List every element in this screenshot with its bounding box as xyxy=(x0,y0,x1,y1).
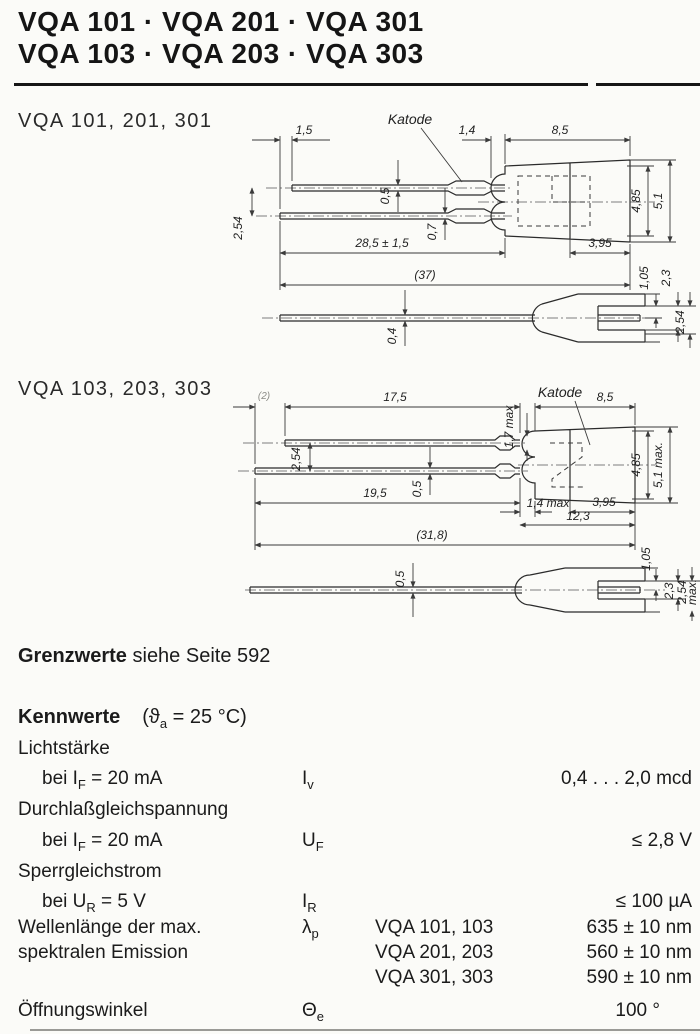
dim-max-suffix: max. xyxy=(685,579,699,605)
page-title: VQA 101 · VQA 201 · VQA 301 VQA 103 · VQ… xyxy=(18,6,424,70)
row-durchlass-group: Durchlaßgleichspannung xyxy=(18,799,694,825)
variant-type: VQA 301, 303 xyxy=(375,967,493,989)
dim-2-54: 2,54 xyxy=(231,216,245,241)
dim-1-4-max: 1,4 max xyxy=(527,496,571,510)
sym-sub: R xyxy=(307,900,316,915)
dim-1-05: 1,05 xyxy=(637,266,651,290)
dim-2: (2) xyxy=(258,391,270,402)
variant-value: 590 ± 10 nm xyxy=(587,967,693,989)
value-lichtstaerke: 0,4 . . . 2,0 mcd xyxy=(561,768,692,790)
dim-8-5: 8,5 xyxy=(552,123,569,137)
dim-8-5: 8,5 xyxy=(597,390,614,404)
condition-pre: (ϑ xyxy=(142,706,160,728)
value-sperr: ≤ 100 µA xyxy=(616,891,692,913)
dim-19-5: 19,5 xyxy=(363,486,387,500)
condition-label: bei UR = 5 V xyxy=(42,891,146,913)
dim-4-85: 4,85 xyxy=(629,453,643,477)
group-label: Lichtstärke xyxy=(18,738,110,759)
row-sperr-value: bei UR = 5 V IR ≤ 100 µA xyxy=(18,891,694,917)
dim-12-3: 12,3 xyxy=(566,509,590,523)
value-durchlass: ≤ 2,8 V xyxy=(632,830,692,852)
dim-2-3: 2,3 xyxy=(662,582,676,600)
figure1-technical-drawing: Katode 1,5 1,4 8,5 0,5 0,7 2,54 28,5 ± 1… xyxy=(0,108,700,370)
row-lichtstaerke-group: Lichtstärke xyxy=(18,738,694,764)
cond-sub: F xyxy=(78,777,86,792)
title-rule-right xyxy=(596,83,700,86)
dim-0-7: 0,7 xyxy=(425,222,439,240)
figure2-technical-drawing: (2) 17,5 1,7 max Katode 8,5 2,54 0,5 19,… xyxy=(0,385,700,640)
cond-post: = 5 V xyxy=(96,891,146,912)
dim-2-54: 2,54 xyxy=(289,447,303,472)
row-durchlass-value: bei IF = 20 mA UF ≤ 2,8 V xyxy=(18,830,694,856)
value-oeffnungswinkel: 100 ° xyxy=(615,1000,660,1022)
dim-1-5: 1,5 xyxy=(296,123,313,137)
fig2-dimension-labels: (2) 17,5 1,7 max Katode 8,5 2,54 0,5 19,… xyxy=(258,384,699,605)
dim-3-95: 3,95 xyxy=(588,236,612,250)
dim-0-4: 0,4 xyxy=(385,327,399,344)
cond-sub: F xyxy=(78,839,86,854)
dim-5-1: 5,1 xyxy=(651,193,665,210)
datasheet-page: VQA 101 · VQA 201 · VQA 301 VQA 103 · VQ… xyxy=(0,0,700,1034)
variant-value: 635 ± 10 nm xyxy=(587,917,693,939)
wellenlaenge-name-2: spektralen Emission xyxy=(18,942,188,963)
dim-37: (37) xyxy=(414,268,435,282)
dim-3-95: 3,95 xyxy=(592,495,616,509)
dim-1-4: 1,4 xyxy=(459,123,476,137)
dim-1-7-max: 1,7 max xyxy=(502,405,516,449)
symbol-lambda-p: λp xyxy=(302,917,319,939)
fig2-dimension-lines xyxy=(233,401,700,621)
condition-sub: a xyxy=(160,716,167,731)
cond-sub: R xyxy=(86,900,95,915)
cond-post: = 20 mA xyxy=(86,830,163,851)
row-lichtstaerke-value: bei IF = 20 mA Iv 0,4 . . . 2,0 mcd xyxy=(18,768,694,794)
grenzwerte-text: siehe Seite 592 xyxy=(127,645,270,667)
cond-pre: bei I xyxy=(42,768,78,789)
row-wellenlaenge-2: spektralen Emission VQA 201, 203 560 ± 1… xyxy=(18,942,694,968)
variant-value: 560 ± 10 nm xyxy=(587,942,693,964)
symbol-iv: Iv xyxy=(302,768,314,790)
sym: λ xyxy=(302,917,312,938)
condition-label: bei IF = 20 mA xyxy=(42,768,162,790)
condition-label: bei IF = 20 mA xyxy=(42,830,162,852)
cond-pre: bei I xyxy=(42,830,78,851)
fig1-katode-label: Katode xyxy=(388,111,433,127)
wellenlaenge-name-1: Wellenlänge der max. xyxy=(18,917,201,938)
variant-type: VQA 201, 203 xyxy=(375,942,493,964)
sym-sub: v xyxy=(307,777,314,792)
title-line-2: VQA 103 · VQA 203 · VQA 303 xyxy=(18,38,424,70)
dim-17-5: 17,5 xyxy=(383,390,407,404)
symbol-uf: UF xyxy=(302,830,324,852)
dim-4-85: 4,85 xyxy=(629,189,643,213)
row-wellenlaenge-1: Wellenlänge der max. λp VQA 101, 103 635… xyxy=(18,917,694,943)
sym-sub: F xyxy=(316,839,324,854)
sym-sub: e xyxy=(317,1009,324,1024)
dim-0-5: 0,5 xyxy=(378,187,392,204)
dim-2-54b: 2,54 xyxy=(673,310,687,335)
kennwerte-condition: (ϑa = 25 °C) xyxy=(142,706,247,728)
row-wellenlaenge-3: VQA 301, 303 590 ± 10 nm xyxy=(18,967,694,993)
dim-31-8: (31,8) xyxy=(416,528,447,542)
oeffnungswinkel-name: Öffnungswinkel xyxy=(18,1000,148,1021)
variant-type: VQA 101, 103 xyxy=(375,917,493,939)
dim-28-5: 28,5 ± 1,5 xyxy=(354,236,409,250)
fig1-dimension-labels: Katode 1,5 1,4 8,5 0,5 0,7 2,54 28,5 ± 1… xyxy=(231,111,687,344)
dim-1-05: 1,05 xyxy=(639,547,653,571)
sym: U xyxy=(302,830,316,851)
title-line-1: VQA 101 · VQA 201 · VQA 301 xyxy=(18,6,424,38)
kennwerte-heading-line: Kennwerte(ϑa = 25 °C) xyxy=(18,706,247,729)
dim-2-3: 2,3 xyxy=(659,269,673,287)
condition-post: = 25 °C) xyxy=(167,706,247,728)
symbol-theta-e: Θe xyxy=(302,1000,324,1022)
fig2-katode-label: Katode xyxy=(538,384,583,400)
row-oeffnungswinkel: Öffnungswinkel Θe 100 ° xyxy=(18,1000,694,1026)
kennwerte-heading: Kennwerte xyxy=(18,706,120,728)
cond-pre: bei U xyxy=(42,891,86,912)
row-sperr-group: Sperrgleichstrom xyxy=(18,861,694,887)
title-rule-left xyxy=(14,83,588,86)
grenzwerte-heading: Grenzwerte xyxy=(18,645,127,667)
bottom-rule xyxy=(30,1029,700,1031)
sym-sub: p xyxy=(312,926,319,941)
group-label: Sperrgleichstrom xyxy=(18,861,162,882)
dim-0-5: 0,5 xyxy=(410,480,424,497)
fig1-internal-chip-outline xyxy=(518,176,590,226)
group-label: Durchlaßgleichspannung xyxy=(18,799,228,820)
grenzwerte-line: Grenzwerte siehe Seite 592 xyxy=(18,645,270,668)
dim-5-1-max: 5,1 max. xyxy=(651,442,665,488)
sym: Θ xyxy=(302,1000,317,1021)
dim-0-5b: 0,5 xyxy=(393,570,407,587)
symbol-ir: IR xyxy=(302,891,317,913)
cond-post: = 20 mA xyxy=(86,768,163,789)
